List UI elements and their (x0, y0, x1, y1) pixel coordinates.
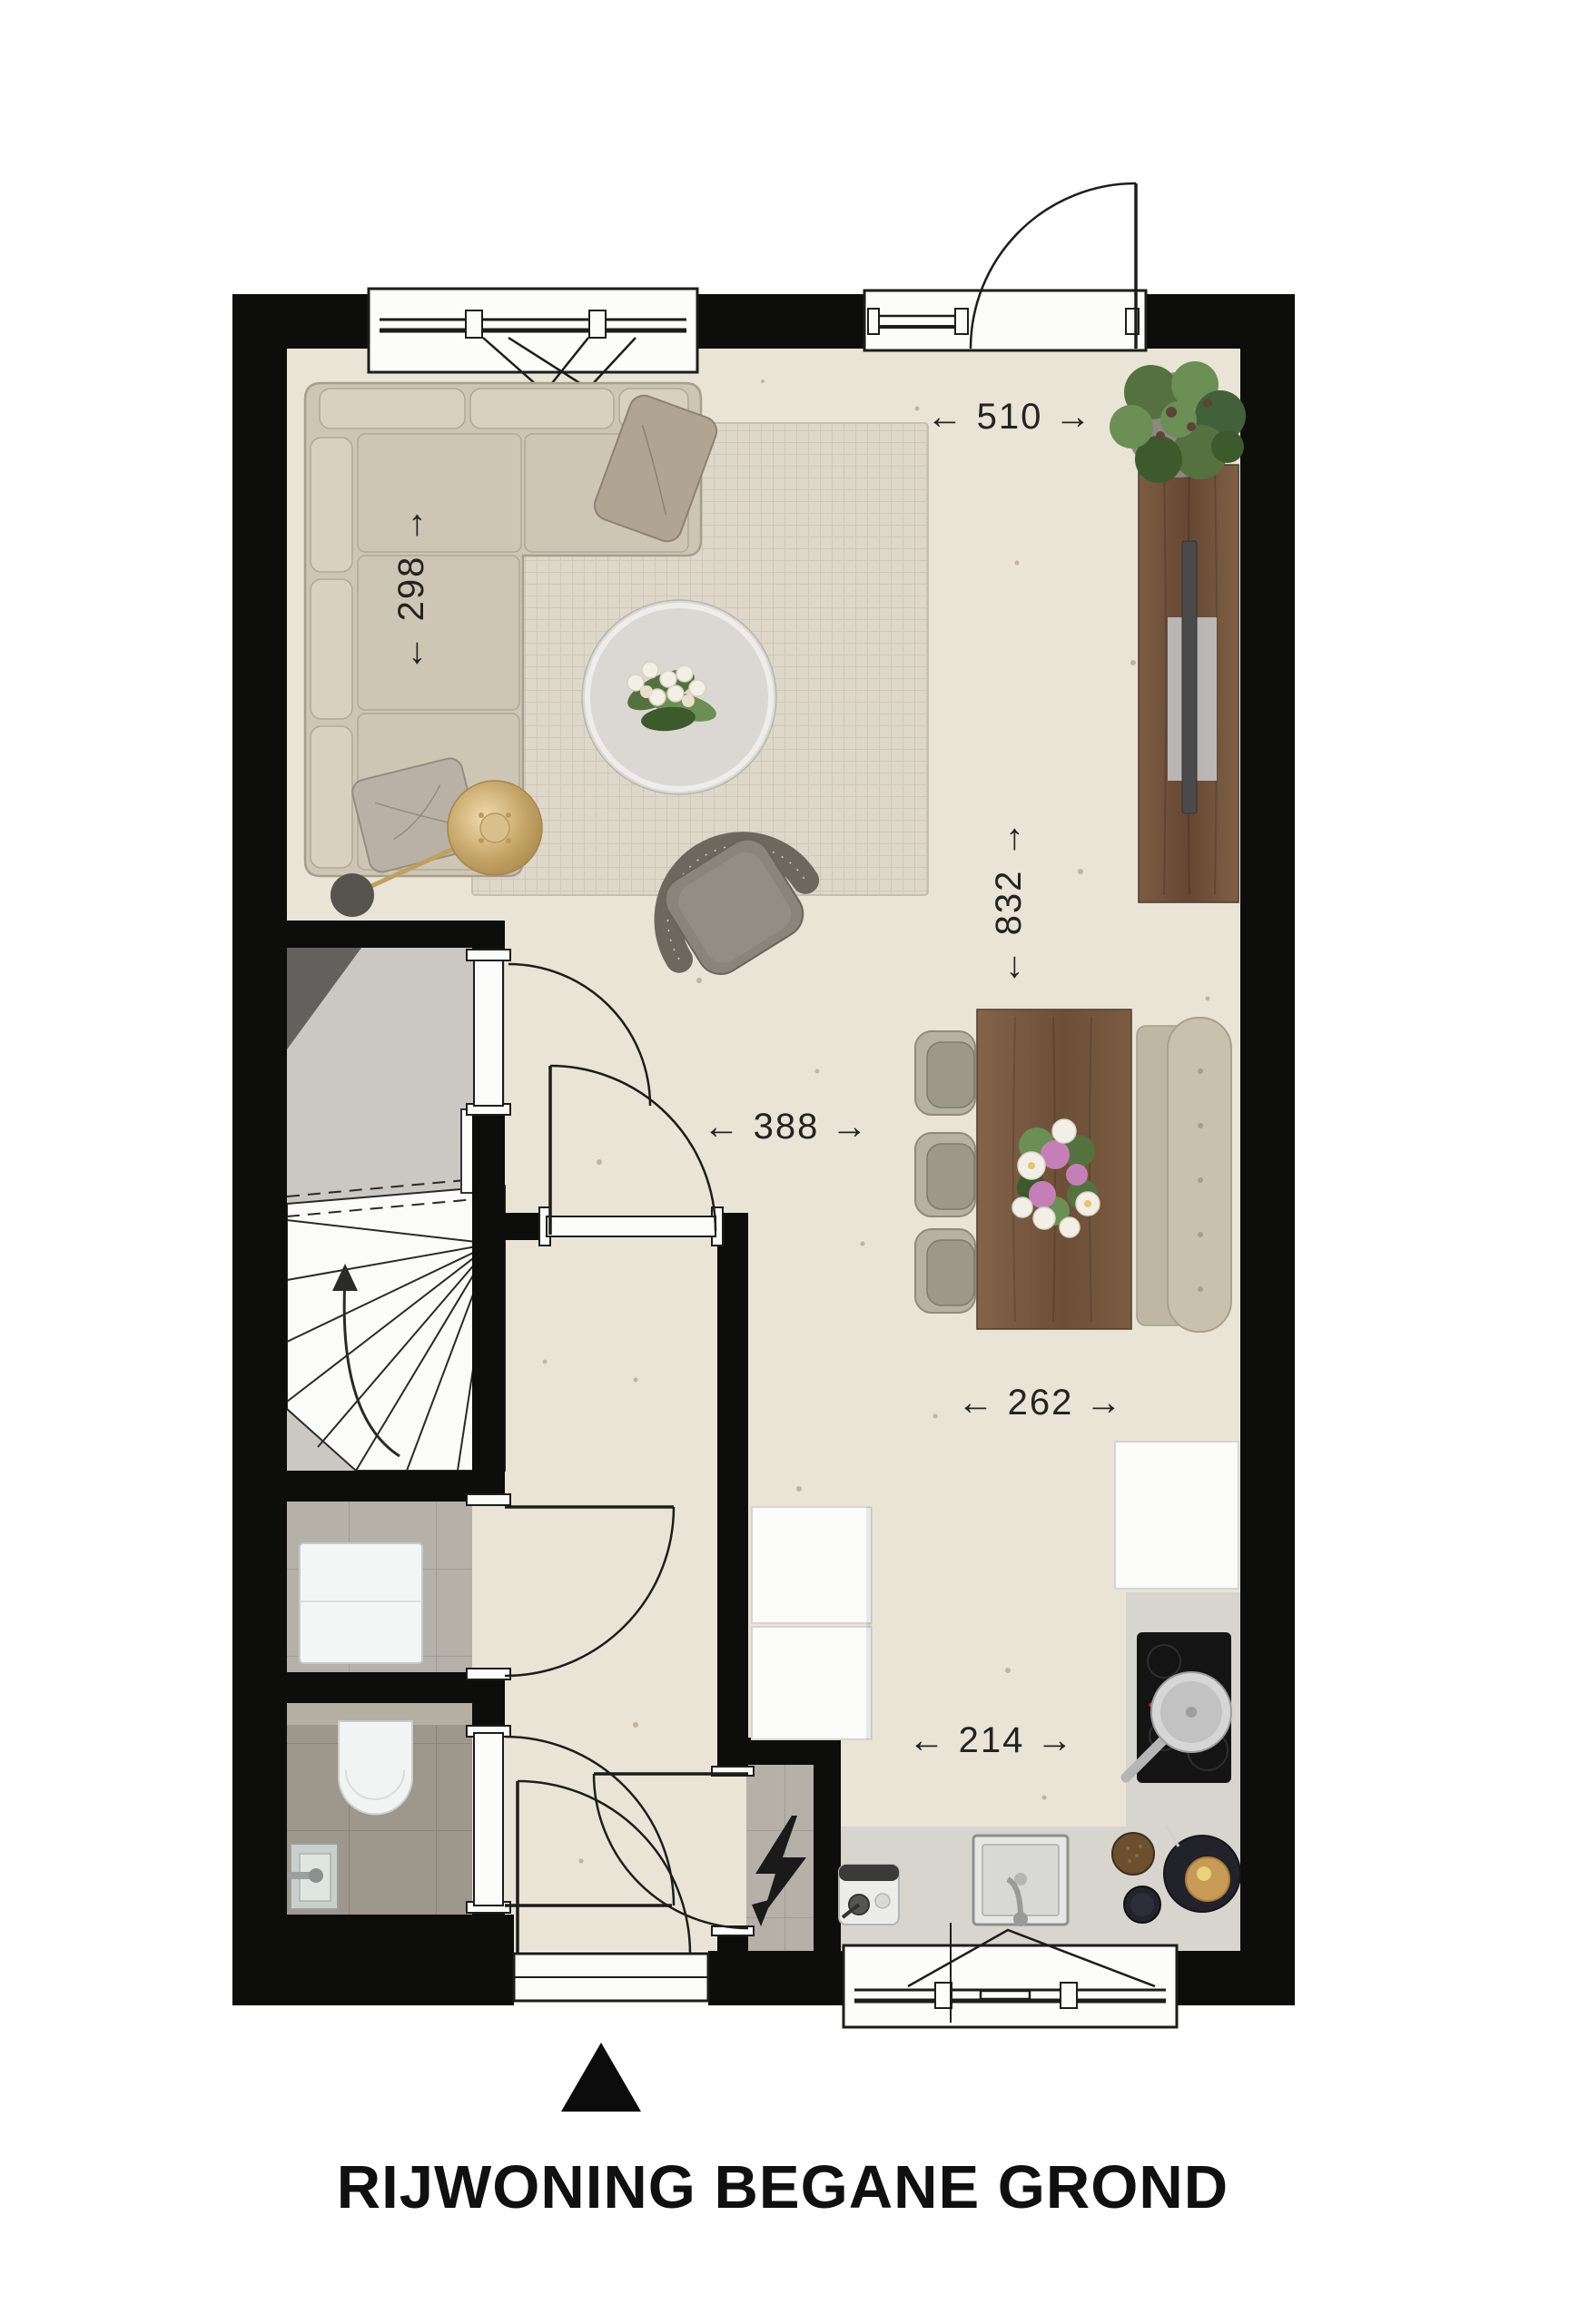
tv-screen (1182, 541, 1197, 813)
floorplan-drawing: ← 510 → ← 298 → ← 832 → ← 388 → ← 262 → … (0, 0, 1569, 2324)
wall-meter-right (814, 1738, 841, 1953)
washing-machine (300, 1543, 422, 1663)
dim-kitchen-width: ← 214 → (909, 1720, 1075, 1760)
dim-entry-width: ← 510 → (927, 397, 1093, 437)
dim-living-length: ← 832 → (989, 820, 1029, 986)
wall-bottom-right (1171, 1951, 1295, 2005)
wall-right (1240, 294, 1295, 2005)
wall-left (232, 294, 287, 2005)
dim-sofa-zone-depth: ← 298 → (391, 506, 431, 672)
wall-top-mid (694, 294, 864, 349)
induction-hob (1126, 1632, 1231, 1783)
wall-hall-kitchen (717, 1213, 748, 1774)
lamp-base (331, 873, 374, 917)
kitchen-sink (973, 1836, 1068, 1926)
tv-sideboard (1139, 465, 1238, 902)
kitchen-cabinet-right (1115, 1442, 1238, 1589)
coffee-machine (839, 1865, 899, 1925)
wall-meter-top (717, 1738, 815, 1765)
toilet-sink (287, 1844, 338, 1909)
dim-living-width: ← 388 → (704, 1107, 870, 1147)
dining-table (977, 1009, 1131, 1329)
coffee-table (582, 600, 776, 794)
page-title: RIJWONING BEGANE GROND (337, 2153, 1229, 2221)
door-leaf-closed (474, 1733, 503, 1905)
front-door (864, 183, 1146, 350)
wall-bottom-mid (708, 1951, 849, 2005)
kitchen-cabinets-left (752, 1507, 872, 1739)
dim-dining-width: ← 262 → (958, 1383, 1124, 1423)
floorplan-page: ← 510 → ← 298 → ← 832 → ← 388 → ← 262 → … (0, 0, 1569, 2324)
dining-chairs (915, 1031, 975, 1313)
faucet-base (1013, 1912, 1028, 1926)
toilet (339, 1721, 412, 1815)
entrance-marker-triangle (561, 2043, 641, 2112)
dining-set (915, 1009, 1231, 1332)
door-leaf-closed (474, 960, 503, 1106)
dining-bench (1137, 1018, 1231, 1332)
front-door-sidelight (868, 309, 879, 334)
wall-bottom-left (232, 1951, 514, 2005)
wall-stair-closet-top (287, 921, 505, 948)
